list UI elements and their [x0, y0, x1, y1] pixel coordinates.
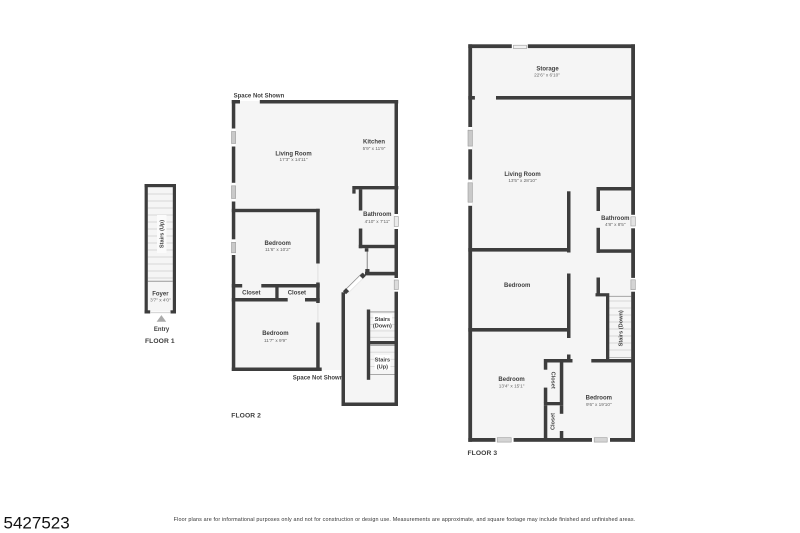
svg-text:Closet: Closet	[550, 413, 556, 430]
svg-text:17'3" x 14'11": 17'3" x 14'11"	[280, 157, 308, 162]
svg-text:Space Not Shown: Space Not Shown	[234, 93, 285, 99]
svg-text:Bedroom: Bedroom	[504, 283, 530, 289]
svg-text:11'6" x 10'2": 11'6" x 10'2"	[265, 247, 291, 252]
svg-text:Bathroom: Bathroom	[363, 212, 391, 218]
svg-text:Stairs (Up): Stairs (Up)	[160, 220, 166, 248]
svg-text:Stairs: Stairs	[375, 358, 391, 364]
svg-text:Bathroom: Bathroom	[601, 216, 629, 222]
svg-text:Stairs: Stairs	[375, 317, 391, 323]
svg-text:Closet: Closet	[288, 291, 306, 297]
svg-text:Stairs (Down): Stairs (Down)	[619, 310, 625, 346]
svg-text:Space Not Shown: Space Not Shown	[293, 376, 344, 382]
svg-text:13'4" x 15'1": 13'4" x 15'1"	[499, 383, 525, 388]
svg-text:FLOOR 1: FLOOR 1	[145, 338, 175, 345]
svg-text:(Up): (Up)	[377, 364, 388, 370]
svg-text:(Down): (Down)	[373, 323, 392, 329]
svg-text:4'10" x 7'11": 4'10" x 7'11"	[365, 219, 391, 224]
svg-text:FLOOR 3: FLOOR 3	[468, 450, 498, 457]
svg-text:4'8" x 8'5": 4'8" x 8'5"	[605, 222, 626, 227]
svg-text:Bedroom: Bedroom	[498, 377, 524, 383]
svg-text:Closet: Closet	[242, 291, 260, 297]
svg-text:11'7" x 9'9": 11'7" x 9'9"	[264, 338, 287, 343]
svg-text:Bedroom: Bedroom	[262, 331, 288, 337]
svg-text:9'6" x 19'10": 9'6" x 19'10"	[586, 402, 612, 407]
svg-text:22'6" x 6'10": 22'6" x 6'10"	[534, 73, 560, 78]
svg-text:Closet: Closet	[550, 372, 556, 389]
svg-text:Entry: Entry	[154, 327, 170, 333]
svg-text:13'5" x 28'10": 13'5" x 28'10"	[508, 178, 537, 183]
svg-text:3'7" x 4'0": 3'7" x 4'0"	[150, 297, 171, 302]
svg-text:Bedroom: Bedroom	[265, 241, 291, 247]
svg-text:5'9" x 11'9": 5'9" x 11'9"	[363, 146, 386, 151]
svg-text:Floor plans are for informatio: Floor plans are for informational purpos…	[174, 517, 636, 523]
svg-text:FLOOR 2: FLOOR 2	[231, 413, 261, 420]
svg-text:5427523: 5427523	[4, 513, 70, 532]
svg-text:Bedroom: Bedroom	[586, 396, 612, 402]
svg-text:Kitchen: Kitchen	[363, 140, 385, 146]
